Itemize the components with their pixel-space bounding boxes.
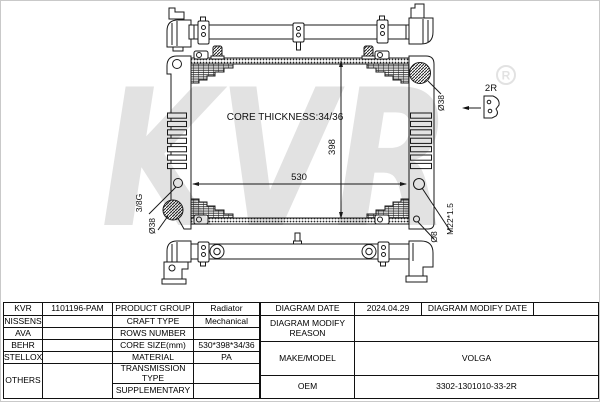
property-cell: PRODUCT GROUP xyxy=(113,303,194,316)
catalog-page: 530 398 CORE THICKNESS:34/36 Ø38 3/8G Ø3… xyxy=(0,0,600,402)
diagram-modify-date-label-cell: DIAGRAM MODIFY DATE xyxy=(422,303,534,316)
property-cell: TRANSMISSION TYPE xyxy=(113,364,194,384)
make-model-label-cell: MAKE/MODEL xyxy=(261,342,355,376)
property-cell: ROWS NUMBER xyxy=(113,328,194,340)
spec-tables: KVR 1101196-PAM PRODUCT GROUP Radiator N… xyxy=(3,302,599,399)
code-cell xyxy=(43,340,113,352)
diagram-date-label-cell: DIAGRAM DATE xyxy=(261,303,355,316)
property-cell: SUPPLEMENTARY xyxy=(113,384,194,399)
value-cell: Radiator xyxy=(194,303,260,316)
watermark-text: KVR xyxy=(101,49,451,270)
kvr-watermark: KVR R xyxy=(101,49,515,270)
diagram-date-value-cell: 2024.04.29 xyxy=(355,303,422,316)
top-left-bracket xyxy=(169,8,184,19)
code-cell xyxy=(43,364,113,399)
bracket-detail-2r: 2R xyxy=(462,83,499,118)
brand-cell: BEHR xyxy=(4,340,43,352)
radiator-technical-diagram: 530 398 CORE THICKNESS:34/36 Ø38 3/8G Ø3… xyxy=(1,1,600,301)
diagram-modify-reason-value-cell xyxy=(355,316,599,342)
code-cell xyxy=(43,328,113,340)
value-cell: 530*398*34/36 xyxy=(194,340,260,352)
oem-label-cell: OEM xyxy=(261,376,355,399)
diagram-modify-date-value-cell xyxy=(534,303,599,316)
top-right-elbow-pipe xyxy=(409,18,433,44)
property-cell: CORE SIZE(mm) xyxy=(113,340,194,352)
brand-cell: STELLOX xyxy=(4,352,43,364)
top-left-elbow-pipe xyxy=(167,20,191,47)
watermark-reg-mark: R xyxy=(502,69,511,83)
brand-spec-table: KVR 1101196-PAM PRODUCT GROUP Radiator N… xyxy=(3,302,260,399)
code-cell xyxy=(43,352,113,364)
oem-value-cell: 3302-1301010-33-2R xyxy=(355,376,599,399)
diagram-modify-reason-label-cell: DIAGRAM MODIFY REASON xyxy=(261,316,355,342)
bracket-detail-label: 2R xyxy=(485,83,497,94)
value-cell: PA xyxy=(194,352,260,364)
brand-cell: NISSENS xyxy=(4,316,43,328)
code-cell: 1101196-PAM xyxy=(43,303,113,316)
diagram-info-table: DIAGRAM DATE 2024.04.29 DIAGRAM MODIFY D… xyxy=(260,302,599,399)
property-cell: MATERIAL xyxy=(113,352,194,364)
top-right-bracket xyxy=(411,4,424,18)
value-cell xyxy=(194,328,260,340)
value-cell: Mechanical xyxy=(194,316,260,328)
brand-cell: KVR xyxy=(4,303,43,316)
code-cell xyxy=(43,316,113,328)
bottom-right-outlet-flange xyxy=(406,276,427,282)
property-cell: CRAFT TYPE xyxy=(113,316,194,328)
value-cell xyxy=(194,384,260,399)
brand-cell: AVA xyxy=(4,328,43,340)
make-model-value-cell: VOLGA xyxy=(355,342,599,376)
value-cell xyxy=(194,364,260,384)
detail-arrow xyxy=(462,106,469,110)
top-crossmember xyxy=(167,4,433,51)
brand-cell: OTHERS xyxy=(4,364,43,399)
